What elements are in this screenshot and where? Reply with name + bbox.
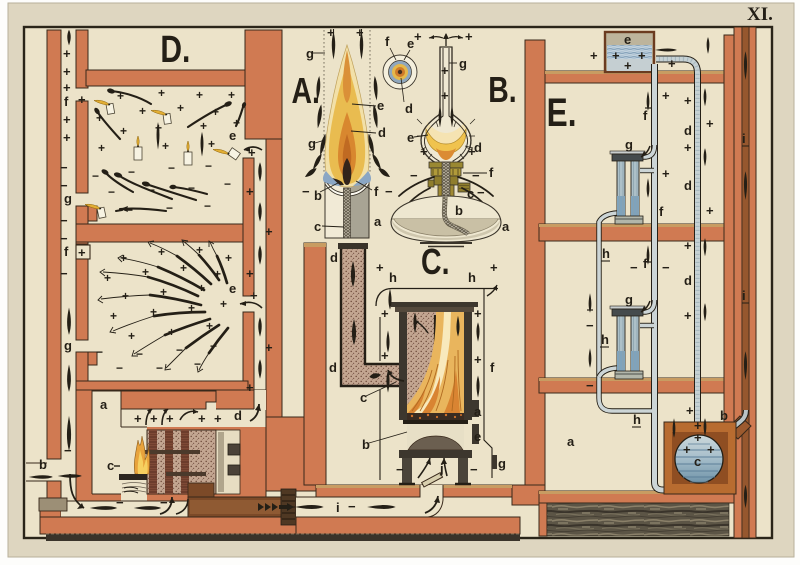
svg-text:c: c (467, 186, 474, 201)
svg-text:+: + (414, 29, 422, 44)
svg-text:f: f (643, 108, 648, 123)
svg-text:b: b (455, 203, 463, 218)
svg-text:d: d (474, 140, 482, 155)
svg-text:c: c (314, 219, 321, 234)
svg-text:+: + (134, 411, 142, 426)
svg-text:−: − (630, 260, 638, 275)
svg-text:+: + (246, 266, 254, 281)
svg-text:f: f (659, 204, 664, 219)
svg-text:b: b (720, 408, 728, 423)
svg-text:+: + (248, 145, 256, 160)
svg-text:+: + (220, 297, 227, 311)
svg-text:−: − (128, 165, 135, 179)
svg-text:−: − (396, 462, 404, 477)
svg-text:+: + (63, 130, 71, 145)
svg-text:−: − (188, 181, 195, 195)
svg-text:+: + (706, 116, 714, 131)
svg-text:e: e (229, 128, 236, 143)
svg-text:−: − (385, 184, 393, 199)
svg-text:f: f (64, 244, 69, 259)
svg-text:f: f (374, 184, 379, 199)
svg-text:+: + (638, 48, 646, 63)
svg-text:+: + (228, 88, 235, 102)
svg-text:g: g (64, 191, 72, 206)
svg-text:g: g (64, 338, 72, 353)
svg-text:i: i (742, 288, 746, 303)
svg-text:g: g (308, 136, 316, 151)
svg-text:+: + (196, 88, 203, 102)
svg-text:+: + (110, 309, 117, 323)
svg-text:+: + (490, 260, 498, 275)
svg-text:g: g (625, 292, 633, 307)
svg-text:a: a (502, 219, 510, 234)
svg-text:−: − (472, 168, 480, 183)
svg-text:−: − (92, 169, 99, 183)
svg-text:−: − (586, 378, 594, 393)
svg-text:+: + (214, 411, 222, 426)
svg-text:A.: A. (292, 71, 320, 111)
svg-text:−: − (60, 160, 68, 175)
svg-text:a: a (100, 397, 108, 412)
svg-text:g: g (306, 46, 314, 61)
svg-text:−: − (477, 185, 485, 200)
svg-text:j: j (439, 461, 444, 476)
svg-text:+: + (420, 144, 428, 159)
svg-text:+: + (158, 86, 165, 100)
svg-text:−: − (64, 443, 72, 458)
svg-text:h: h (633, 412, 641, 427)
svg-text:d: d (405, 101, 413, 116)
svg-text:+: + (465, 29, 473, 44)
svg-text:i: i (742, 131, 746, 146)
svg-text:e: e (474, 429, 481, 444)
svg-text:+: + (162, 139, 169, 153)
svg-text:E.: E. (547, 89, 577, 134)
svg-text:+: + (63, 80, 71, 95)
svg-text:+: + (662, 88, 670, 103)
svg-text:−: − (410, 168, 418, 183)
svg-text:e: e (624, 32, 631, 47)
svg-text:−: − (662, 260, 670, 275)
svg-text:+: + (208, 137, 215, 151)
svg-text:+: + (177, 101, 184, 115)
svg-text:B.: B. (488, 70, 516, 110)
svg-text:+: + (104, 271, 111, 285)
svg-text:+: + (356, 25, 364, 40)
svg-text:−: − (96, 345, 103, 359)
svg-text:−: − (586, 318, 594, 333)
svg-text:D.: D. (160, 29, 190, 71)
svg-text:−: − (160, 495, 168, 510)
svg-text:+: + (246, 380, 254, 395)
svg-text:+: + (376, 260, 384, 275)
svg-text:−: − (156, 361, 163, 375)
svg-text:h: h (389, 270, 397, 285)
svg-text:+: + (474, 352, 482, 367)
svg-text:f: f (490, 360, 495, 375)
svg-text:+: + (166, 411, 174, 426)
svg-text:+: + (225, 251, 232, 265)
svg-text:−: − (166, 201, 173, 215)
svg-text:−: − (204, 199, 211, 213)
svg-text:−: − (116, 495, 124, 510)
svg-text:h: h (601, 332, 609, 347)
svg-text:g: g (498, 456, 506, 471)
svg-text:i: i (336, 500, 340, 515)
svg-text:a: a (567, 434, 575, 449)
svg-text:−: − (205, 159, 212, 173)
svg-text:b: b (314, 188, 322, 203)
svg-text:d: d (684, 178, 692, 193)
svg-text:−: − (168, 161, 175, 175)
svg-text:g: g (625, 137, 633, 152)
svg-text:+: + (63, 112, 71, 127)
svg-text:+: + (624, 58, 632, 73)
svg-text:+: + (78, 92, 86, 107)
svg-text:e: e (377, 98, 384, 113)
svg-text:−: − (108, 185, 115, 199)
svg-text:e: e (229, 281, 236, 296)
svg-text:+: + (128, 329, 135, 343)
svg-text:+: + (120, 124, 127, 138)
svg-text:d: d (684, 123, 692, 138)
svg-text:d: d (234, 408, 242, 423)
svg-text:d: d (378, 125, 386, 140)
svg-text:+: + (684, 308, 692, 323)
svg-text:+: + (381, 306, 389, 321)
svg-text:c: c (107, 458, 114, 473)
svg-text:b: b (39, 457, 47, 472)
svg-text:+: + (684, 238, 692, 253)
svg-text:e: e (407, 130, 414, 145)
svg-text:+: + (662, 166, 670, 181)
svg-text:a: a (374, 214, 382, 229)
svg-text:b: b (362, 437, 370, 452)
svg-text:+: + (265, 340, 273, 355)
svg-text:d: d (684, 273, 692, 288)
svg-text:−: − (470, 462, 478, 477)
svg-text:C.: C. (421, 242, 449, 282)
svg-text:−: − (60, 213, 68, 228)
svg-text:+: + (200, 119, 207, 133)
svg-text:+: + (707, 442, 715, 457)
svg-text:+: + (668, 56, 676, 71)
svg-text:g: g (459, 56, 467, 71)
svg-text:+: + (441, 63, 449, 78)
svg-text:+: + (684, 93, 692, 108)
svg-text:+: + (250, 288, 258, 303)
svg-text:d: d (330, 250, 338, 265)
svg-text:+: + (474, 306, 482, 321)
svg-text:h: h (602, 246, 610, 261)
svg-text:+: + (150, 411, 158, 426)
svg-text:+: + (441, 88, 449, 103)
svg-text:+: + (63, 64, 71, 79)
svg-text:+: + (381, 348, 389, 363)
svg-text:+: + (684, 140, 692, 155)
svg-text:−: − (348, 499, 356, 514)
svg-text:+: + (63, 46, 71, 61)
svg-text:c: c (694, 454, 701, 469)
svg-text:+: + (98, 141, 105, 155)
svg-text:+: + (683, 442, 691, 457)
svg-text:−: − (116, 361, 123, 375)
svg-text:f: f (489, 165, 494, 180)
svg-text:XI.: XI. (747, 4, 773, 25)
svg-text:+: + (265, 224, 273, 239)
svg-text:+: + (78, 245, 86, 260)
svg-text:−: − (302, 184, 310, 199)
svg-text:d: d (329, 360, 337, 375)
svg-text:+: + (694, 418, 702, 433)
svg-text:h: h (468, 270, 476, 285)
svg-text:+: + (198, 411, 206, 426)
svg-text:−: − (60, 266, 68, 281)
svg-text:a: a (474, 404, 482, 419)
svg-text:f: f (64, 94, 69, 109)
svg-text:+: + (686, 403, 694, 418)
svg-text:+: + (590, 48, 598, 63)
svg-text:−: − (224, 177, 231, 191)
svg-text:+: + (612, 48, 620, 63)
svg-text:+: + (706, 203, 714, 218)
svg-text:f: f (385, 34, 390, 49)
svg-text:+: + (139, 104, 146, 118)
svg-text:c: c (360, 390, 367, 405)
svg-text:+: + (246, 184, 254, 199)
